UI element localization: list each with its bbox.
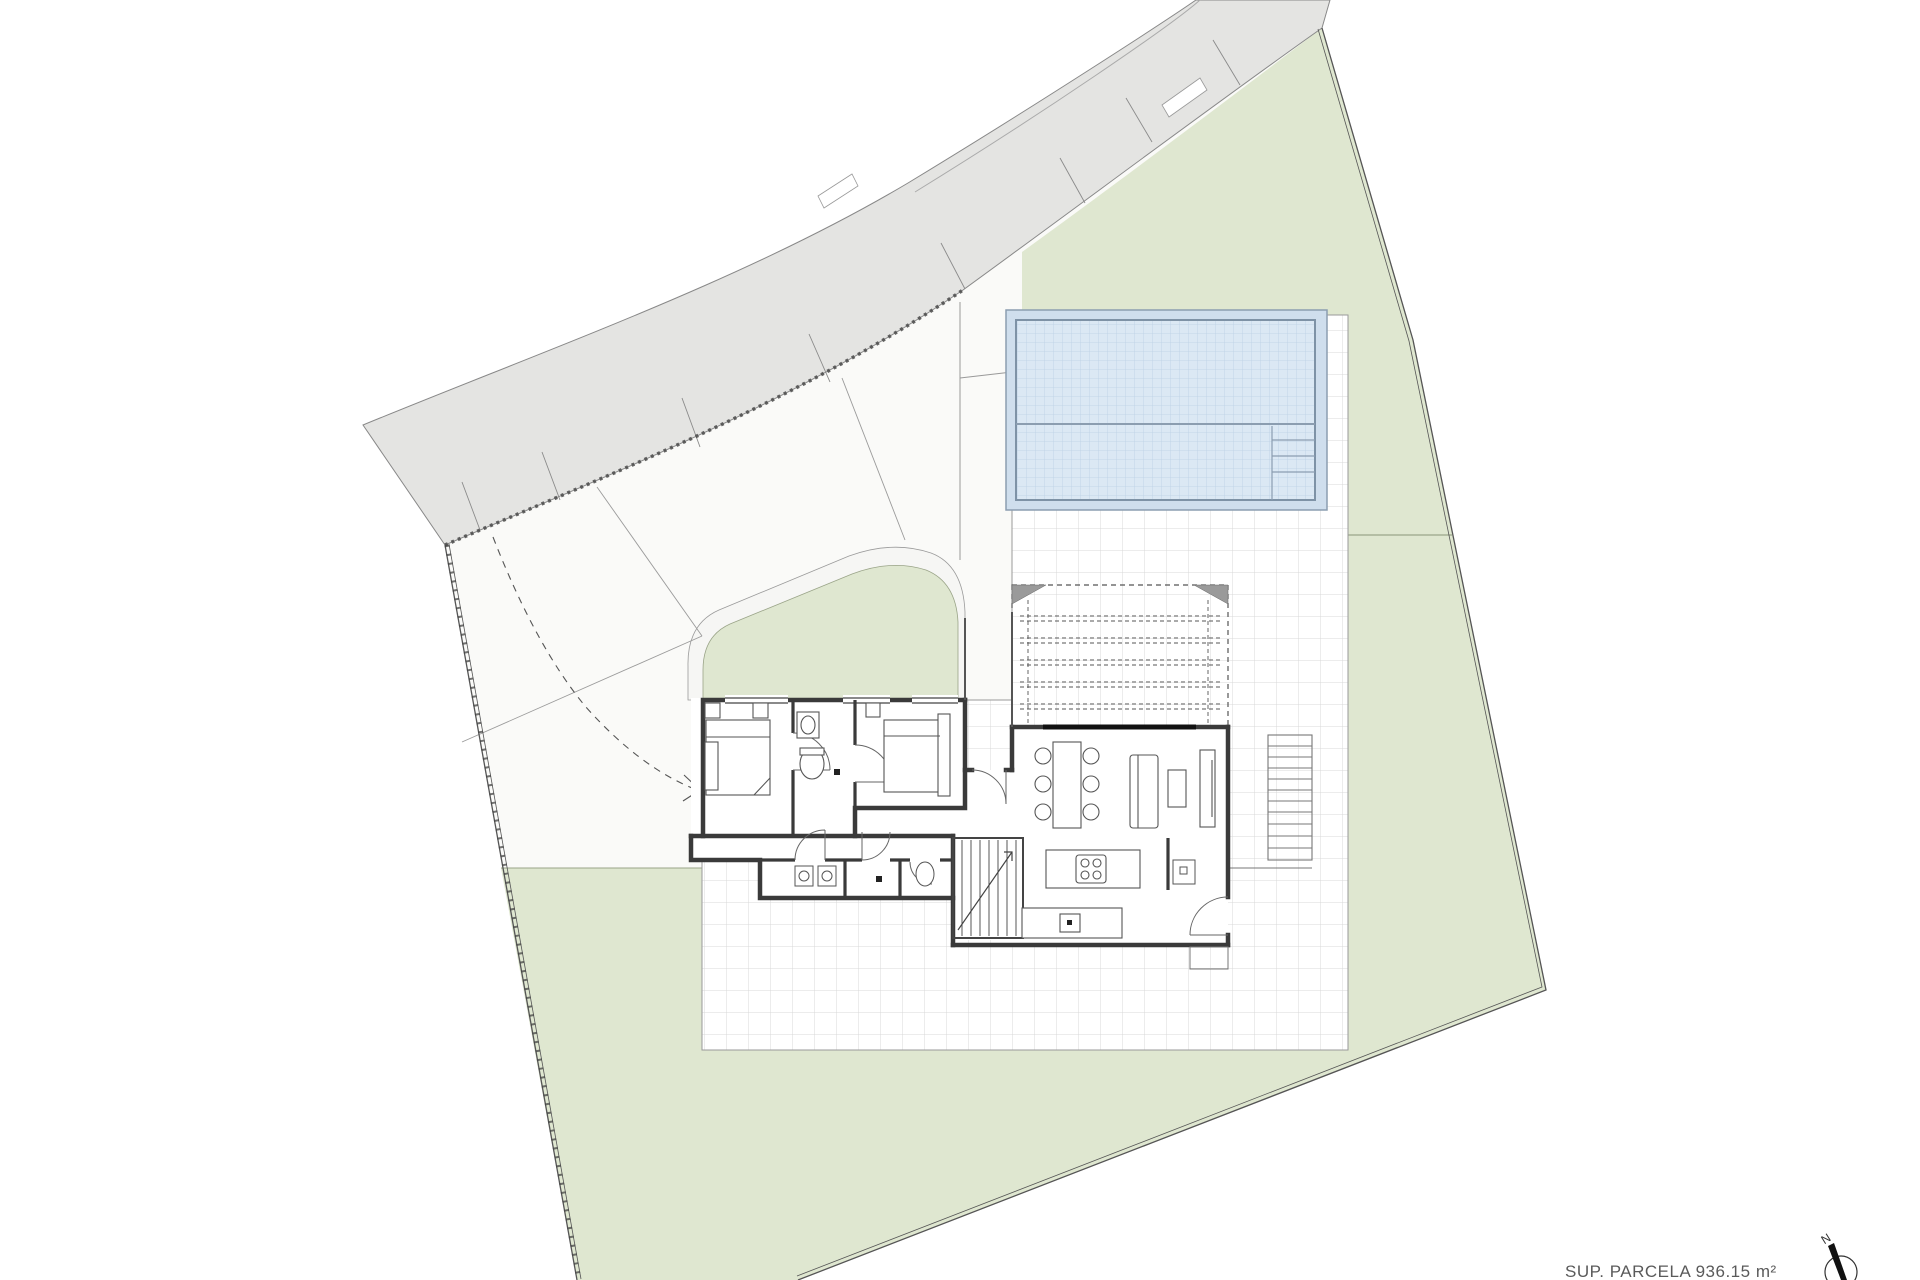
parcel-area-label: SUP. PARCELA 936.15 m²	[1565, 1262, 1777, 1280]
sidewalk-notch	[818, 174, 858, 208]
site-plan-drawing: SUP. PARCELA 936.15 m² N	[0, 0, 1920, 1280]
swimming-pool	[1006, 310, 1327, 510]
site-plan-page: SUP. PARCELA 936.15 m² N	[0, 0, 1920, 1280]
north-compass-icon: N	[1819, 1231, 1857, 1280]
